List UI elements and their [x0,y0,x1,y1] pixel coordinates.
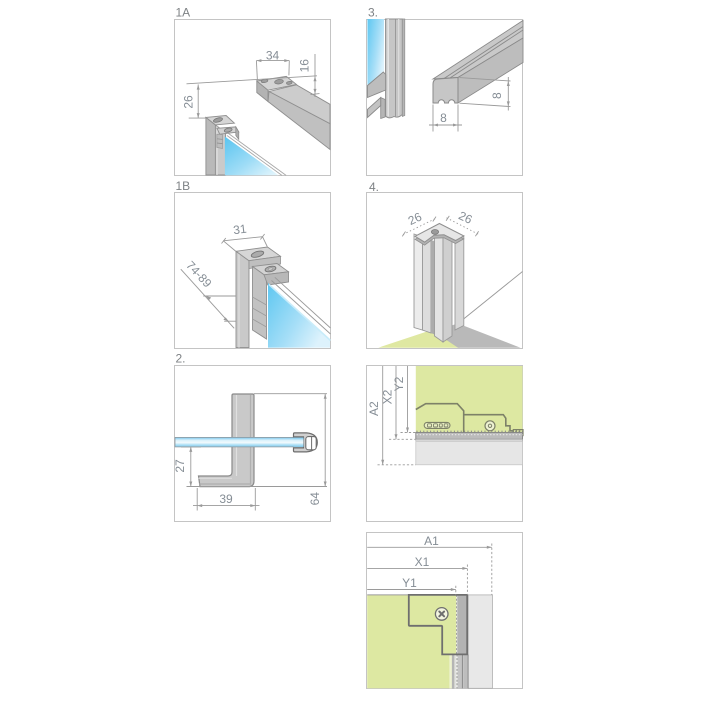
svg-text:X1: X1 [415,555,430,569]
svg-text:2.: 2. [176,352,186,366]
svg-text:31: 31 [232,222,247,238]
svg-text:4.: 4. [369,180,379,194]
svg-text:34: 34 [266,48,280,62]
svg-text:8: 8 [440,111,447,125]
svg-text:64: 64 [308,492,322,506]
svg-text:Y2: Y2 [392,376,406,391]
svg-text:27: 27 [173,459,187,473]
svg-text:39: 39 [219,492,233,506]
svg-text:1A: 1A [176,6,191,20]
svg-text:A1: A1 [424,534,439,548]
svg-text:8: 8 [490,92,504,99]
svg-text:Y1: Y1 [402,576,417,590]
svg-text:1B: 1B [176,179,191,193]
svg-text:26: 26 [182,95,196,109]
svg-text:3.: 3. [368,6,378,20]
svg-text:A2: A2 [367,401,381,416]
svg-text:16: 16 [297,59,311,73]
